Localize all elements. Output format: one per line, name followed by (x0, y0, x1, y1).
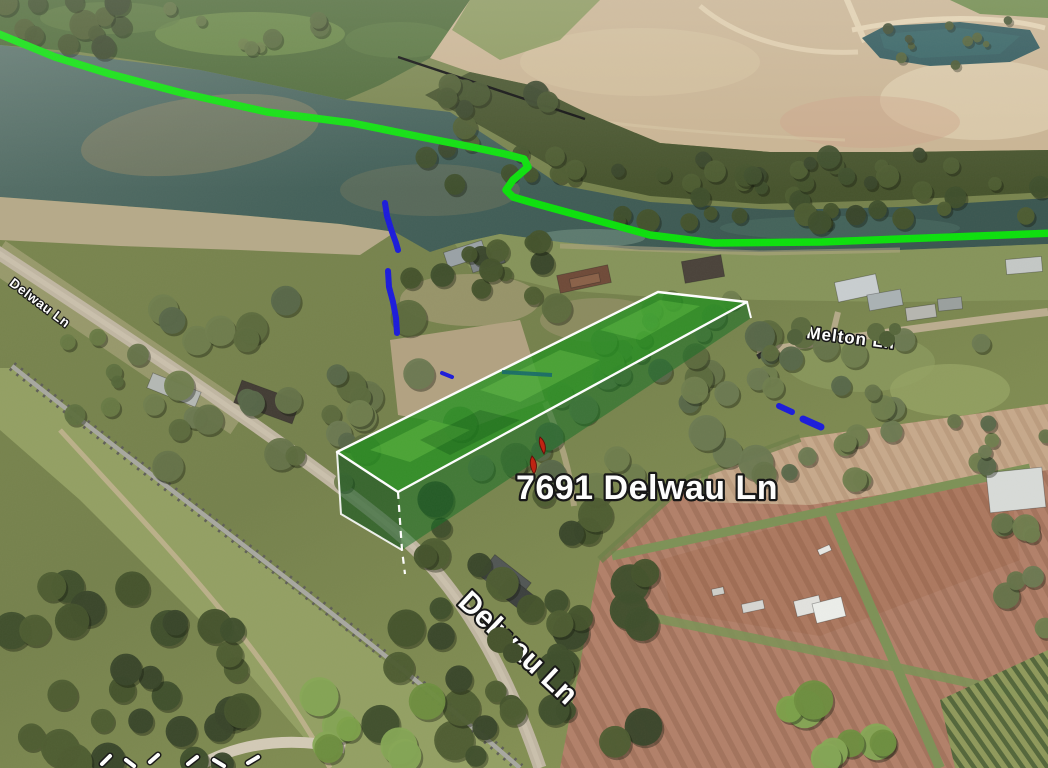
photo-grain (0, 0, 1048, 768)
map-canvas: 7691 Delwau Ln Delwau Ln Delwau Ln Melto… (0, 0, 1048, 768)
aerial-map[interactable]: 7691 Delwau Ln Delwau Ln Delwau Ln Melto… (0, 0, 1048, 768)
